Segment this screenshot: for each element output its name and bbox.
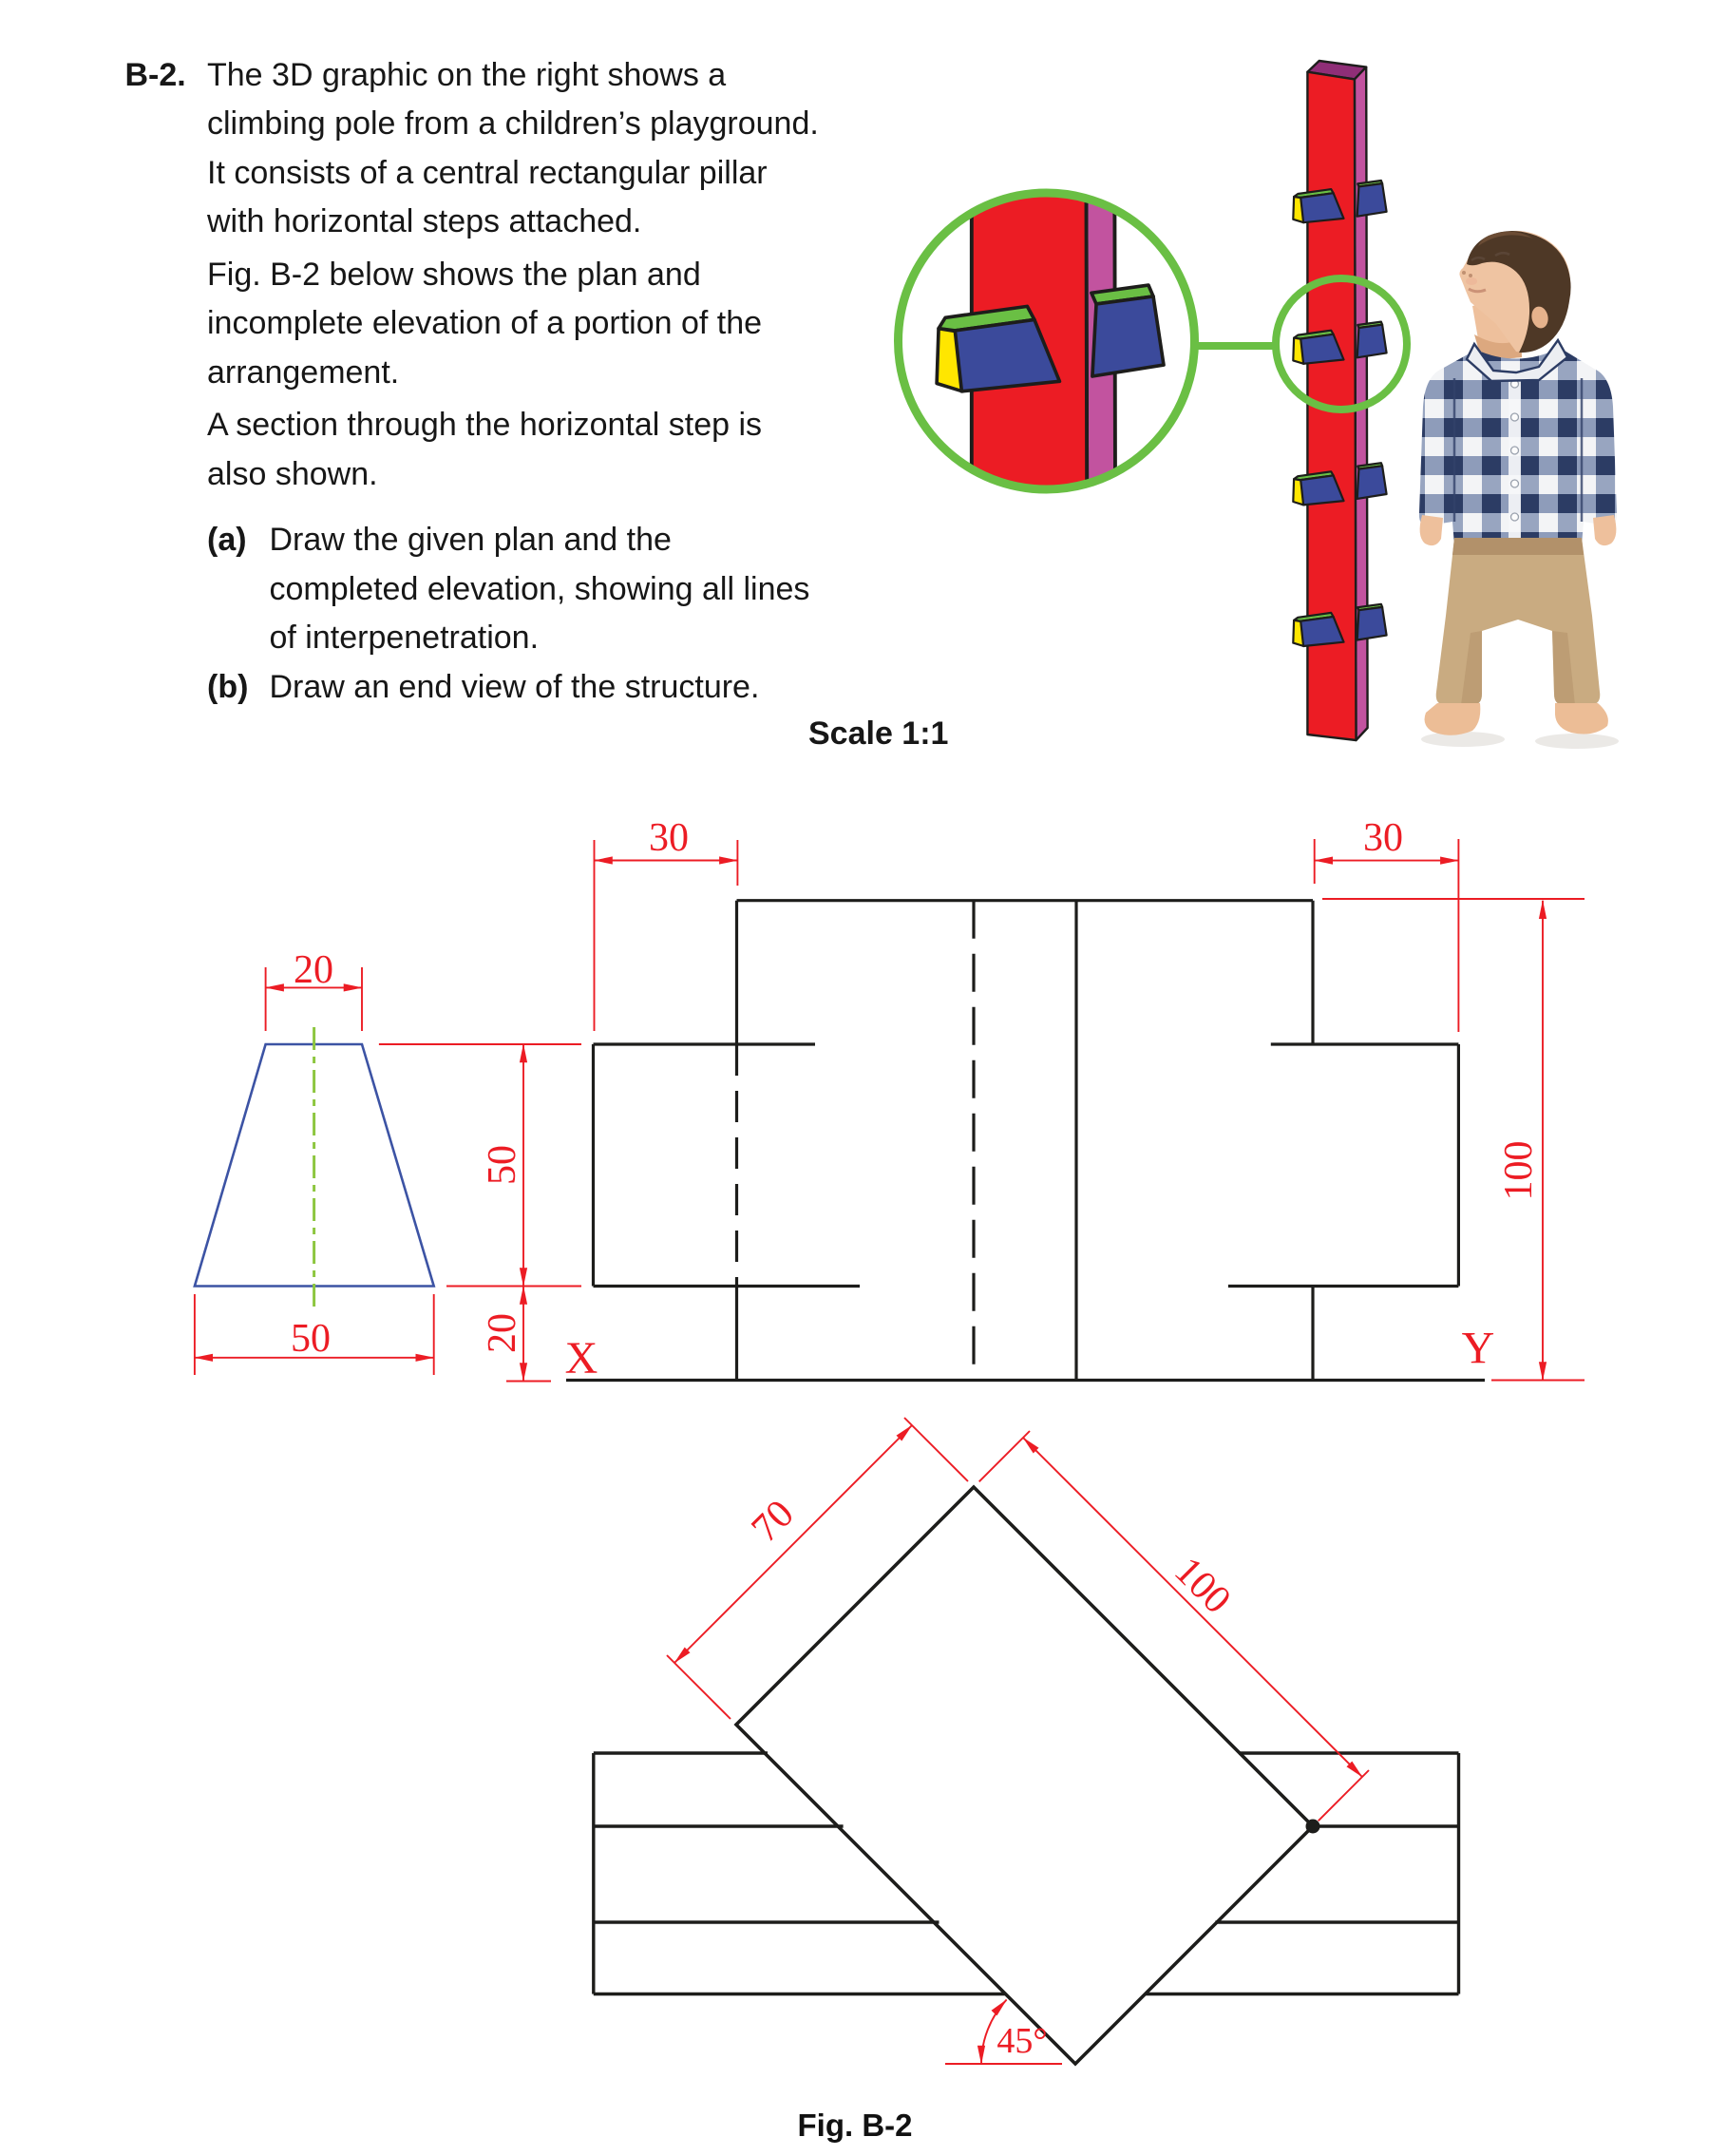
svg-text:20: 20 bbox=[294, 948, 333, 992]
svg-text:Fig. B-2: Fig. B-2 bbox=[798, 2108, 913, 2143]
svg-text:50: 50 bbox=[481, 1145, 524, 1185]
svg-text:100: 100 bbox=[1497, 1141, 1541, 1201]
svg-text:50: 50 bbox=[291, 1317, 331, 1361]
svg-text:30: 30 bbox=[1363, 816, 1403, 860]
svg-text:20: 20 bbox=[481, 1313, 524, 1353]
svg-text:45°: 45° bbox=[996, 2021, 1047, 2061]
svg-text:100: 100 bbox=[1166, 1549, 1239, 1622]
svg-text:Y: Y bbox=[1462, 1324, 1495, 1374]
svg-text:30: 30 bbox=[649, 816, 689, 860]
svg-text:X: X bbox=[565, 1333, 598, 1383]
svg-text:70: 70 bbox=[744, 1492, 803, 1551]
